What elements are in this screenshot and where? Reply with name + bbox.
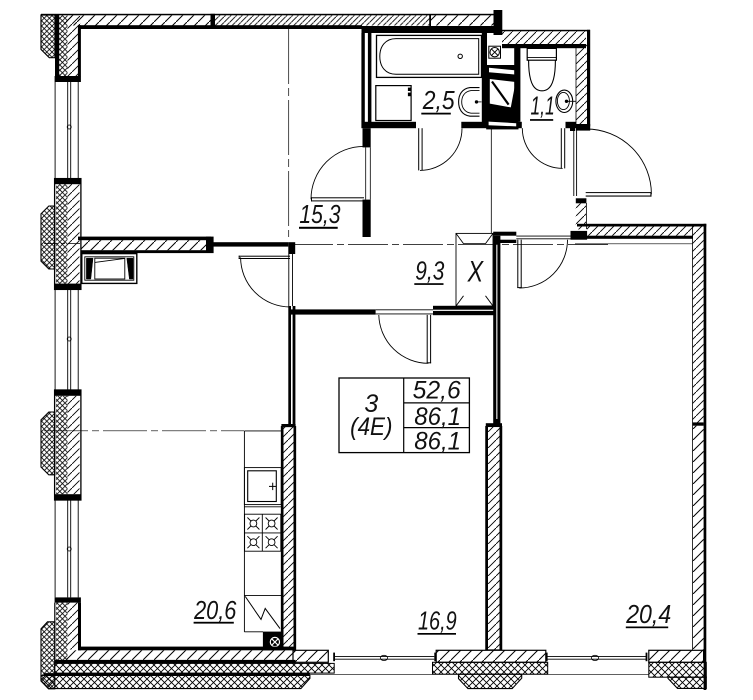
- svg-text:X: X: [467, 256, 484, 289]
- svg-text:2,5: 2,5: [422, 85, 455, 115]
- svg-text:16,9: 16,9: [418, 605, 457, 635]
- svg-text:9,3: 9,3: [415, 256, 444, 286]
- svg-text:86,1: 86,1: [414, 428, 461, 456]
- svg-text:52,6: 52,6: [413, 377, 461, 405]
- svg-text:1,1: 1,1: [531, 90, 555, 120]
- svg-text:15,3: 15,3: [299, 199, 341, 229]
- svg-text:20,4: 20,4: [625, 599, 671, 629]
- svg-text:20,6: 20,6: [193, 595, 237, 625]
- svg-text:(4E): (4E): [350, 413, 392, 441]
